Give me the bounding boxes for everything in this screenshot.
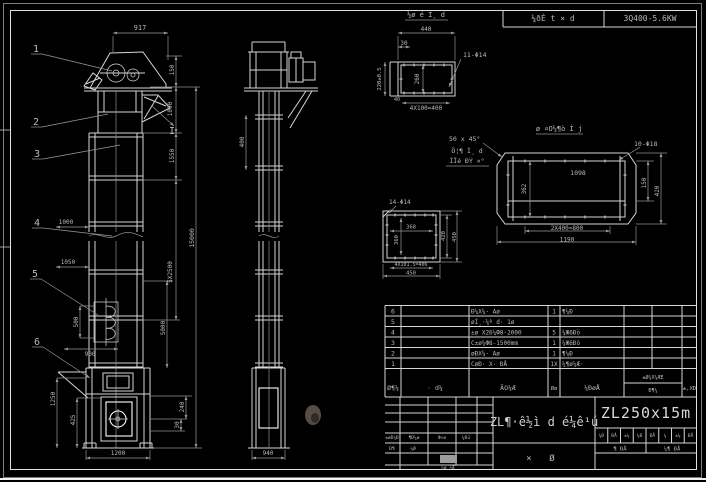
dim-right-inner: 5000: [160, 320, 167, 335]
front-elevation-view: 1 2 3 4 5 6 917 150 1090 1550 5X2500 500…: [30, 24, 285, 460]
dim-right-mid: 5X2500: [167, 261, 174, 283]
dim-trough-width: 1190: [560, 237, 575, 244]
dim-flange-width: 440: [421, 26, 432, 33]
bom-header-no: Ø¶¼: [387, 384, 399, 392]
rev-label-4: ¼Ðü: [462, 435, 470, 441]
tb-row2-a: ¶ ÐÅ: [613, 446, 627, 453]
top-header-strip: ¼ðÈ t × d 3Q400-5.6KW: [503, 10, 697, 27]
rev-label-1: ±øÐ¼Ð: [385, 435, 399, 441]
dim-left-a: 1000: [59, 219, 74, 226]
dim-boot-left-a: 1250: [50, 391, 57, 406]
cursor-smudge: [305, 405, 321, 425]
dim-boot-right-b: 30: [174, 421, 181, 429]
side-elevation-view: 400 940: [239, 42, 318, 458]
tb-cell-4: ÐÅ: [650, 432, 656, 439]
bom-header-total-weight: Ð¶¼: [648, 388, 657, 394]
dim-bucket-spacing: 900: [85, 351, 96, 358]
dim-square-right-a: 420: [441, 231, 447, 241]
bom-qty: 5: [552, 330, 556, 337]
bom-header-name: ÃO¼Æ: [500, 383, 516, 392]
bom-qty: 1: [552, 309, 556, 316]
tb-cell-2: ±¼: [624, 433, 630, 439]
dim-trough-right-a: 150: [641, 177, 648, 188]
dim-right-c: 1550: [169, 148, 176, 163]
tb-row2-b: ¼¶ ÐÅ: [664, 446, 681, 453]
tb-cell-1: ÐÅ: [611, 432, 617, 439]
bom-name: Ð¼X¼· Aø: [471, 309, 500, 316]
detail-square-flange-view: 14-Φ14 368 360 420 450 4X101.5=406 450: [383, 199, 462, 279]
dim-boot-right-a: 240: [179, 401, 186, 412]
tb-cell-6: ±¼: [675, 433, 681, 439]
balloon-5: 5: [32, 269, 38, 280]
bom-no: 5: [391, 318, 395, 326]
section-mark-I: I: [169, 126, 175, 137]
dim-trough-inner-h: 362: [521, 183, 528, 194]
rev-cell-a: Ð¶: [389, 446, 395, 452]
detail-square-holes-label: 14-Φ14: [389, 199, 411, 206]
bom-qty: 1: [552, 351, 556, 358]
bom-no: 4: [391, 329, 395, 337]
bucket-chain-detail: [94, 298, 118, 346]
dim-trough-inner-w: 1098: [570, 169, 586, 177]
note-block: Ö¦¶ Ì¸ d ÍÏé ÐÝ ×°: [446, 146, 489, 166]
bom-name: ±ø X26¼Ф8-2000: [471, 330, 522, 337]
bom-material: ¶¼Ð: [562, 309, 573, 316]
dim-flange-pitch: 4X100=400: [410, 105, 443, 112]
dim-flange-height: 220±0.5: [377, 67, 383, 90]
header-field-2: 3Q400-5.6KW: [624, 14, 677, 23]
balloon-1: 1: [33, 44, 39, 55]
bom-material: ¶¼Ð: [562, 351, 573, 358]
dim-bucket-height: 500: [73, 316, 80, 327]
bom-row: 6 Ð¼X¼· Aø 1 ¶¼Ð: [391, 308, 573, 316]
bom-row: 3 C±ø¼Ф8-1500mm 1 ¼Ж6Ðö: [391, 339, 580, 347]
bom-header-material: ¼ÐøÅ: [584, 383, 600, 392]
bom-name: øÐX¼· Aø: [471, 351, 500, 358]
header-field-1: ¼ðÈ t × d: [531, 12, 575, 23]
bom-row: 2 øÐX¼· Aø 1 ¶¼Ð: [391, 350, 573, 358]
balloon-4: 4: [34, 218, 40, 229]
tb-cell-3: ¼Ð: [637, 433, 643, 439]
front-view-dimensions: 917 150 1090 1550 5X2500 5000 15000 1000…: [50, 24, 285, 460]
bom-header-weight: ±Ø¼X¼ÆE: [642, 374, 663, 381]
highlighted-cell: [440, 455, 457, 463]
bom-header-code: · d¼: [427, 384, 443, 392]
bom-no: 2: [391, 350, 395, 358]
balloon-3: 3: [34, 149, 40, 160]
dim-square-right-b: 450: [452, 232, 458, 242]
dim-trough-pitch: 2X400=800: [551, 225, 584, 232]
dim-square-pitch: 4X101.5=406: [394, 262, 427, 268]
bom-name: CøÐ· X· ÐÅ: [471, 361, 508, 368]
balloon-6: 6: [34, 337, 40, 348]
bom-name: C±ø¼Ф8-1500mm: [471, 340, 518, 347]
dim-side-neck: 400: [239, 136, 246, 147]
note-line-2: ÍÏé ÐÝ ×°: [449, 156, 484, 165]
dim-right-b: 1090: [167, 101, 174, 116]
dim-base-width: 1200: [111, 450, 126, 457]
drawing-subtitle-char-1: ×: [526, 454, 531, 464]
dim-right-a: 150: [169, 64, 176, 75]
dim-side-base: 940: [263, 450, 274, 457]
bom-name: øÌ¸·¼º d· 1ø: [471, 319, 515, 326]
bom-material: ¼Ж6Ðö: [562, 340, 580, 347]
dim-left-b: 1050: [61, 259, 76, 266]
bom-no: 6: [391, 308, 395, 316]
bom-header-note: ±,XÐ: [683, 386, 696, 392]
dim-flange-inner: 260: [414, 73, 421, 84]
dim-square-inner-w: 368: [406, 225, 416, 231]
bom-row: 5 øÌ¸·¼º d· 1ø: [391, 318, 515, 326]
model-number: ZL250x15m: [601, 404, 691, 422]
dim-flange-offset: 30: [400, 40, 408, 47]
dim-head-width: 917: [134, 24, 147, 32]
detail-trough-view: ø ¤O½¶ò Ì j 50 x 45° 10-Φ18 1098 362 150…: [449, 124, 667, 245]
detail-trough-holes-label: 10-Φ18: [634, 140, 658, 148]
bom-qty: 1X: [550, 361, 558, 368]
detail-trough-title: ø ¤O½¶ò Ì j: [536, 124, 582, 133]
boot-section: [58, 368, 154, 448]
bom-material: ¼¶ø¼Æ·: [562, 361, 584, 368]
cad-drawing-sheet: ¼ðÈ t × d 3Q400-5.6KW 1 2 3 4 5 6: [0, 0, 706, 482]
title-block: ±øÐ¼Ð ¶Ð¼ø Ф×ø ¼Ðü Ð¶ ¼Ø ¼ø ¼Æ ZL¶·ê½ì d…: [385, 397, 697, 471]
tb-cell-5: ¼: [664, 433, 667, 439]
dim-overall-height: 15000: [188, 228, 196, 248]
bom-header-row: Ø¶¼ · d¼ ÃO¼Æ Øø ¼ÐøÅ ±Ø¼X¼ÆE Ð¶¼ ±,XÐ: [387, 374, 696, 394]
drawing-title: ZL¶·ê½ì d é¼ê¹ú: [490, 415, 598, 429]
dim-trough-right-b: 420: [654, 185, 661, 196]
bom-qty: 1: [552, 340, 556, 347]
bom-row: 4 ±ø X26¼Ф8-2000 5 ¼Ж6Ðö: [391, 329, 580, 337]
bom-no: 1: [391, 360, 395, 368]
tb-cell-7: ÐÅ: [688, 432, 694, 439]
rev-cell-b: ¼Ø: [410, 445, 416, 452]
note-line-1: Ö¦¶ Ì¸ d: [451, 146, 482, 155]
bom-material: ¼Ж6Ðö: [562, 330, 580, 337]
drawing-subtitle-char-2: Ø: [549, 453, 555, 464]
rev-label-3: Ф×ø: [438, 435, 446, 441]
dim-flange-mark: 40: [394, 97, 400, 103]
detail-flange-title: ½ø é Ì¸ d: [407, 10, 445, 19]
bom-row: 1 CøÐ· X· ÐÅ 1X ¼¶ø¼Æ·: [391, 360, 584, 368]
rev-label-2: ¶Ð¼ø: [409, 435, 420, 441]
chamfer-note: 50 x 45°: [449, 135, 480, 143]
dim-square-inner-h: 360: [394, 235, 400, 245]
detail-flange-holes-label: 11-Φ14: [463, 51, 487, 59]
balloon-2: 2: [33, 117, 39, 128]
dim-boot-left-b: 425: [70, 414, 77, 425]
bom-table: 6 Ð¼X¼· Aø 1 ¶¼Ð 5 øÌ¸·¼º d· 1ø 4 ±ø X26…: [385, 306, 697, 398]
bom-no: 3: [391, 339, 395, 347]
detail-flange-view: ½ø é Ì¸ d 11-Φ14 440 30 220±0.5 260 4X10…: [377, 10, 487, 112]
bom-header-qty: Øø: [551, 385, 558, 392]
rev-bottom-label: ¼ø ¼Æ: [441, 465, 455, 471]
tb-cell-0: ¼Ð: [599, 433, 605, 439]
dim-square-width: 450: [406, 271, 416, 277]
